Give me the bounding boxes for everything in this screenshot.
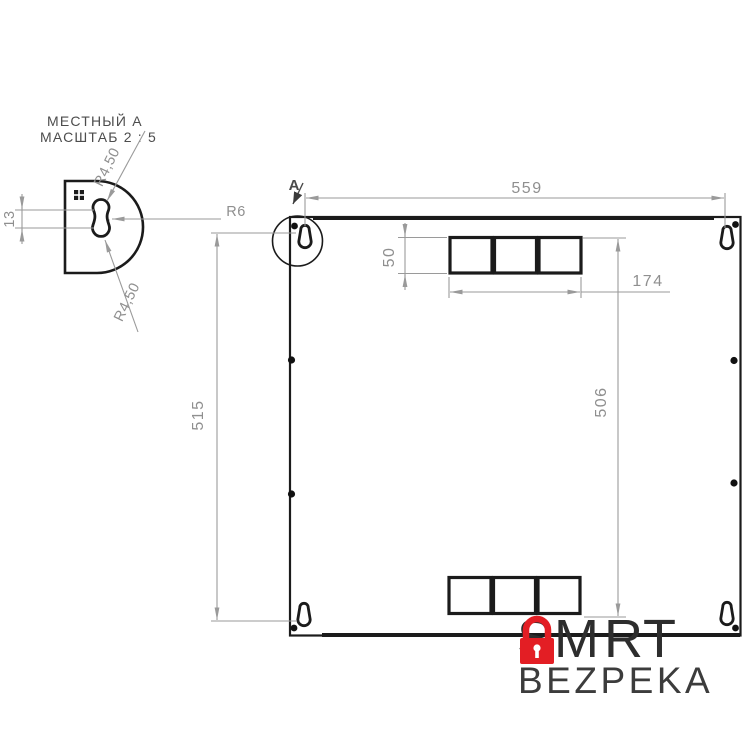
dim-515-label: 515 bbox=[190, 399, 207, 430]
dimension-cutout-span-506 bbox=[583, 238, 626, 617]
mounting-holes bbox=[288, 221, 739, 631]
top-cutout-group bbox=[450, 238, 581, 274]
dim-r450-top-label: R4,50 bbox=[91, 145, 123, 189]
dim-r450-bottom-label: R4,50 bbox=[111, 280, 143, 324]
dim-559-label: 559 bbox=[511, 180, 542, 197]
dimension-cutout-height-50 bbox=[398, 223, 447, 290]
dim-506-label: 506 bbox=[593, 386, 610, 417]
dim-13-label: 13 bbox=[2, 210, 18, 227]
brand-row: SM RT bbox=[517, 612, 677, 666]
detail-title-line2: МАСШТАБ 2 : 5 bbox=[40, 129, 157, 145]
detail-title-line1: МЕСТНЫЙ А bbox=[47, 112, 143, 129]
corner-keyhole-slots bbox=[298, 225, 733, 625]
dim-50-label: 50 bbox=[381, 247, 398, 268]
dimension-width-559 bbox=[305, 193, 725, 228]
detail-a-label: A bbox=[289, 177, 300, 194]
detail-keyhole-slot bbox=[93, 200, 111, 237]
brand-watermark: SM RT bbox=[517, 612, 677, 666]
panel-outline bbox=[290, 217, 741, 636]
technical-drawing-page: МЕСТНЫЙ А МАСШТАБ 2 : 5 13 R4,50 bbox=[0, 0, 750, 750]
brand-text-suffix: RT bbox=[604, 612, 677, 666]
panel-view: A 559 515 50 17 bbox=[190, 177, 741, 636]
dimension-height-515 bbox=[211, 233, 297, 621]
brand-subtitle: BEZPEKA bbox=[518, 662, 713, 699]
dim-r6-label: R6 bbox=[226, 204, 246, 220]
dim-174-label: 174 bbox=[632, 273, 663, 290]
small-hole-icon bbox=[74, 190, 84, 200]
detail-view: МЕСТНЫЙ А МАСШТАБ 2 : 5 13 R4,50 bbox=[2, 112, 246, 332]
